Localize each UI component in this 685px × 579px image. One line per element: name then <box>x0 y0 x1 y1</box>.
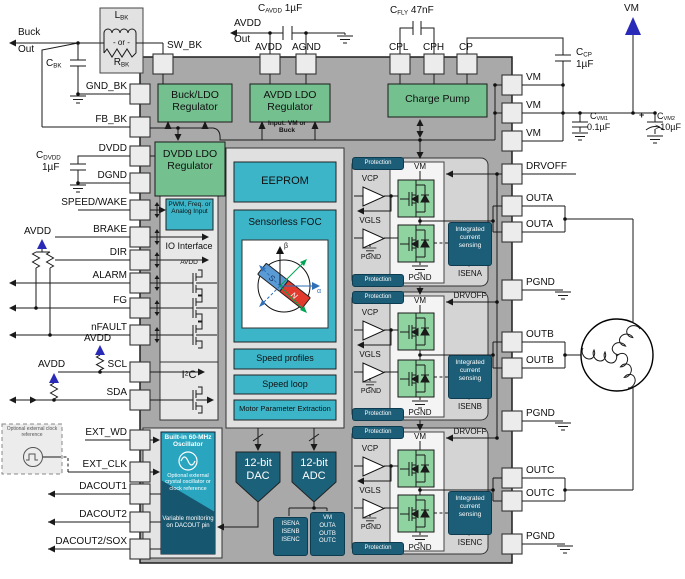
osc-monitor-label: Variable monitoring on DACOUT pin <box>162 516 214 530</box>
pin-label-avdd: AVDD <box>255 42 282 54</box>
pin-label-fb-bk: FB_BK <box>30 114 127 126</box>
pin-vm2 <box>502 103 522 123</box>
speed-profiles-label: Speed profiles <box>234 353 336 363</box>
pin-fg <box>130 298 150 318</box>
phase-vm-label: VM <box>408 432 432 441</box>
pin-fb-bk <box>130 117 150 137</box>
cdvdd-label: CDVDD <box>36 150 61 162</box>
or-label: - or - <box>106 38 137 47</box>
pin-label-cp: CP <box>459 42 473 54</box>
pin-pgnd-c <box>502 534 522 554</box>
avdd-ldo-label: AVDD LDO Regulator <box>250 89 330 113</box>
buck-out-label: Buck <box>18 27 40 39</box>
pin-agnd <box>296 54 316 74</box>
protection-badge: Protection <box>352 408 404 421</box>
pin-label-sda: SDA <box>30 387 127 399</box>
pin-alarm <box>130 273 150 293</box>
vgls-label: VGLS <box>355 216 385 225</box>
pgnd-label: PGND <box>356 254 386 262</box>
pin-label-dacout2: DACOUT2 <box>30 509 127 521</box>
pin-label-nfault: nFAULT <box>30 322 127 334</box>
cvm1-value: 0.1µF <box>587 122 610 132</box>
pgnd-label: PGND <box>356 524 386 532</box>
block-diagram: S N GND_BK FB_BK DVDD DGND SPEED/WAKE BR… <box>0 0 685 579</box>
pin-avdd <box>260 54 280 74</box>
protection-badge: Protection <box>352 426 404 439</box>
ccp-label: CCP <box>576 47 592 59</box>
pin-label-outb2: OUTB <box>526 355 554 367</box>
avdd-out-label: Out <box>234 34 250 46</box>
foc-beta-label: β <box>284 243 288 251</box>
pin-dgnd <box>130 173 150 193</box>
dac-label: 12-bit DAC <box>238 457 278 482</box>
protection-badge: Protection <box>352 274 404 287</box>
pin-dacout2 <box>130 512 150 532</box>
cvm2-value: >10µF <box>655 122 681 132</box>
pin-label-drvoff: DRVOFF <box>526 161 567 173</box>
ccp-value: 1µF <box>576 59 593 71</box>
isenc-label: ISENC <box>448 538 492 547</box>
pin-label-vm1: VM <box>526 72 541 84</box>
io-avdd-label: AVDD <box>170 259 208 266</box>
drvoff-feed-label: DRVOFF <box>446 291 494 300</box>
cavdd-label: CAVDD 1µF <box>258 3 302 15</box>
pin-label-fg: FG <box>30 295 127 307</box>
pin-label-dacout2-sox: DACOUT2/SOX <box>30 536 127 548</box>
pgnd-label: PGND <box>356 388 386 396</box>
pin-label-dacout1: DACOUT1 <box>30 481 127 493</box>
pin-brake <box>130 227 150 247</box>
pin-label-ext-clk: EXT_CLK <box>30 459 127 471</box>
foc-alpha-label: α <box>317 288 321 296</box>
pin-label-cpl: CPL <box>389 42 408 54</box>
pin-pgnd-b <box>502 411 522 431</box>
pwm-input-label: PWM, Freq. or Analog Input <box>167 201 212 216</box>
pin-dacout2-sox <box>130 539 150 559</box>
cbk-label: CBK <box>46 58 62 70</box>
phase-vm-label: VM <box>408 296 432 305</box>
avdd-pullup-label: AVDD <box>84 333 111 345</box>
io-interface-label: IO Interface <box>160 241 218 251</box>
cvm2-plus-icon: + <box>639 110 644 120</box>
cvm1-label: CVM1 <box>590 111 608 123</box>
pin-label-alarm: ALARM <box>30 270 127 282</box>
pin-pgnd-a <box>502 280 522 300</box>
adc-src-isen-box: ISENA ISENB ISENC <box>273 517 308 556</box>
pin-label-outa1: OUTA <box>526 193 553 205</box>
pin-cpl <box>390 54 410 74</box>
vgls-label: VGLS <box>355 486 385 495</box>
pin-label-cph: CPH <box>423 42 444 54</box>
current-sense-block: Integrated current sensing <box>448 491 492 535</box>
pin-label-agnd: AGND <box>292 42 321 54</box>
pin-label-sw-bk: SW_BK <box>167 40 202 52</box>
pin-label-speed-wake: SPEED/WAKE <box>30 197 127 209</box>
pin-label-pgnd-b: PGND <box>526 408 555 420</box>
pin-nfault <box>130 325 150 345</box>
pin-speed-wake <box>130 200 150 220</box>
protection-badge: Protection <box>352 157 404 170</box>
pin-dacout1 <box>130 484 150 504</box>
adc-src-vm-box: VM OUTA OUTB OUTC <box>310 512 345 556</box>
drvoff-feed-label: DRVOFF <box>446 427 494 436</box>
vm-supply-arrow <box>625 17 641 35</box>
foc-label: Sensorless FOC <box>234 217 336 229</box>
osc-note-label: Optional external crystal oscillator or … <box>162 473 214 492</box>
phase-vm-label: VM <box>408 162 432 171</box>
pin-label-pgnd-a: PGND <box>526 277 555 289</box>
avdd-ldo-input-note: Input: VM or Buck <box>260 120 314 135</box>
i2c-label: I2C <box>160 369 218 382</box>
buck-out-label: Out <box>18 44 34 56</box>
pin-outa2 <box>502 222 522 242</box>
pin-outb1 <box>502 332 522 352</box>
pin-cph <box>424 54 444 74</box>
eeprom-label: EEPROM <box>234 175 336 188</box>
pgnd-label: PGND <box>404 408 436 417</box>
pin-vm3 <box>502 131 522 151</box>
pgnd-label: PGND <box>404 273 436 282</box>
pin-label-vm2: VM <box>526 100 541 112</box>
pin-label-vm3: VM <box>526 128 541 140</box>
avdd-arrow-icon <box>49 373 59 383</box>
pin-dvdd <box>130 146 150 166</box>
pin-label-gnd-bk: GND_BK <box>30 81 127 93</box>
avdd-pullup-label: AVDD <box>38 359 65 371</box>
pin-outb2 <box>502 358 522 378</box>
vcp-label: VCP <box>356 174 384 183</box>
pin-outc2 <box>502 491 522 511</box>
pin-ext-wd <box>130 430 150 450</box>
osc-title-label: Built-in 60-MHz Oscillator <box>162 434 214 449</box>
isenb-label: ISENB <box>448 402 492 411</box>
pin-outc1 <box>502 468 522 488</box>
motor-param-label: Motor Parameter Extraction <box>234 405 336 414</box>
pin-label-outa2: OUTA <box>526 219 553 231</box>
pin-scl <box>130 362 150 382</box>
avdd-pullup-label: AVDD <box>24 226 51 238</box>
protection-badge: Protection <box>352 542 404 555</box>
rbk-label: RBK <box>106 57 137 69</box>
pin-sda <box>130 390 150 410</box>
pin-outa1 <box>502 196 522 216</box>
avdd-arrow-icon <box>95 345 105 355</box>
protection-badge: Protection <box>352 291 404 304</box>
isena-label: ISENA <box>448 269 492 278</box>
motor-symbol <box>581 319 653 391</box>
vgls-label: VGLS <box>355 350 385 359</box>
pin-vm1 <box>502 75 522 95</box>
vcp-label: VCP <box>356 444 384 453</box>
cvm2-label: CVM2 <box>657 111 675 123</box>
cdvdd-value: 1µF <box>42 162 59 174</box>
pin-gnd-bk <box>130 84 150 104</box>
vm-supply-label: VM <box>624 3 639 15</box>
clock-ref-label: Optional external clock reference <box>4 427 60 439</box>
pin-dir <box>130 250 150 270</box>
pin-label-outc1: OUTC <box>526 465 554 477</box>
pin-drvoff <box>502 164 522 184</box>
buck-ldo-label: Buck/LDO Regulator <box>158 89 232 113</box>
pin-sw-bk <box>153 54 173 74</box>
lbk-label: LBK <box>106 10 137 22</box>
pin-label-outb1: OUTB <box>526 329 554 341</box>
pin-label-dir: DIR <box>30 247 127 259</box>
vcp-label: VCP <box>356 308 384 317</box>
pgnd-label: PGND <box>404 543 436 552</box>
charge-pump-label: Charge Pump <box>388 93 487 105</box>
cfly-label: CFLY 47nF <box>390 5 434 17</box>
pin-label-outc2: OUTC <box>526 488 554 500</box>
pin-ext-clk <box>130 462 150 482</box>
adc-label: 12-bit ADC <box>294 457 334 482</box>
current-sense-block: Integrated current sensing <box>448 222 492 266</box>
dvdd-ldo-label: DVDD LDO Regulator <box>155 148 225 172</box>
avdd-out-label: AVDD <box>234 18 261 30</box>
speed-loop-label: Speed loop <box>234 379 336 389</box>
pin-cp <box>457 54 477 74</box>
current-sense-block: Integrated current sensing <box>448 355 492 399</box>
pin-label-pgnd-c: PGND <box>526 531 555 543</box>
